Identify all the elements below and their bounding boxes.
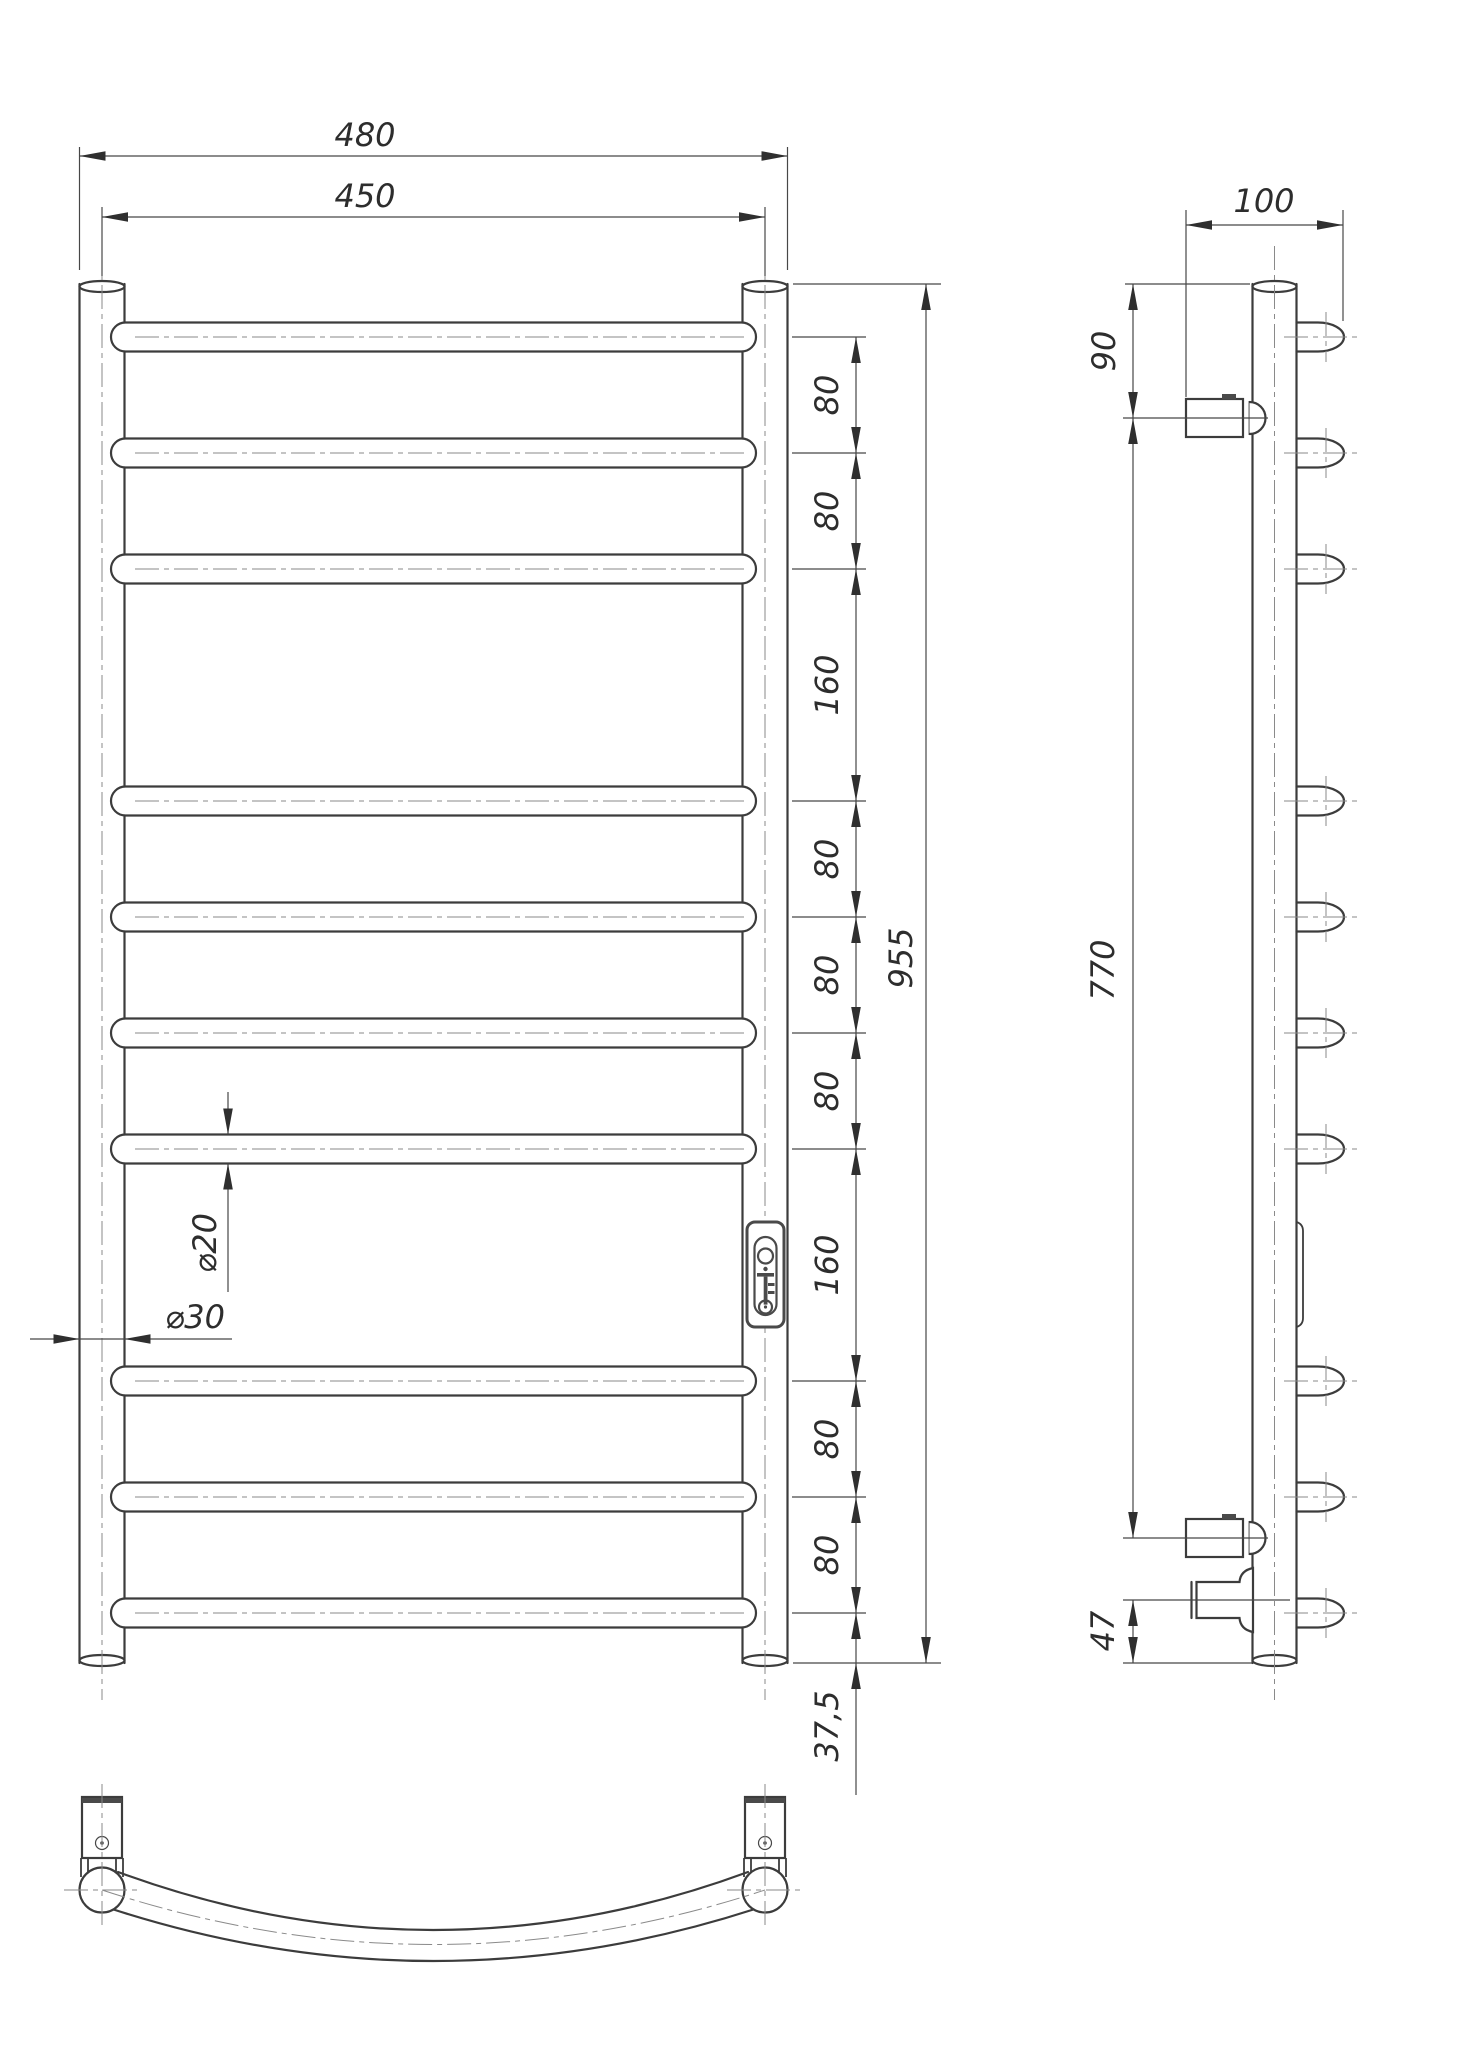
curved-rung: [112, 1872, 755, 1961]
dim-rung-diameter: ⌀20: [186, 1092, 233, 1292]
dim-label-spacing-9: 80: [808, 1535, 846, 1576]
bottom-view: [64, 1784, 803, 1961]
dim-bracket-span: 770: [1084, 418, 1268, 1538]
towel-rail-drawing: 480 450: [0, 0, 1475, 2048]
drawing-sheet: 480 450: [0, 0, 1475, 2048]
dim-label-rung-diameter: ⌀20: [186, 1213, 224, 1273]
dim-label-bracket-span: 770: [1084, 939, 1122, 1000]
dim-width-overall: 480: [80, 116, 788, 270]
dim-label-spacing-2: 80: [808, 491, 846, 532]
dim-label-spacing-4: 80: [808, 839, 846, 880]
dim-label-connector-offset: 47: [1084, 1610, 1122, 1651]
rung-stubs: [1297, 323, 1345, 1628]
dim-top-bracket-offset: 90: [1085, 284, 1268, 418]
dim-label-bottom-offset: 37,5: [808, 1690, 846, 1761]
dim-tube-diameter: ⌀30: [30, 1298, 232, 1344]
rungs: [111, 323, 756, 1628]
bottom-centerlines: [64, 1784, 803, 1945]
dim-label-spacing-1: 80: [808, 375, 846, 416]
dim-depth: 100: [1186, 182, 1343, 397]
dim-width-centers: 450: [102, 177, 765, 276]
dim-label-width-overall: 480: [334, 116, 395, 154]
dim-label-spacing-7: 160: [808, 1234, 846, 1295]
side-view: 100 90 770 47: [1084, 182, 1362, 1700]
dim-label-spacing-8: 80: [808, 1419, 846, 1460]
brand-plate: [747, 1222, 784, 1327]
dim-label-width-centers: 450: [334, 177, 395, 215]
dim-label-spacing-3: 160: [808, 654, 846, 715]
dim-label-tube-diameter: ⌀30: [165, 1298, 225, 1336]
dim-label-spacing-6: 80: [808, 1071, 846, 1112]
dim-rung-spacing-chain: 80 80 160 80 80 80 160 80 80 37,5: [792, 337, 866, 1795]
dim-label-top-bracket-offset: 90: [1085, 331, 1123, 372]
dim-label-depth: 100: [1233, 182, 1294, 220]
front-view: 480 450: [30, 116, 941, 1795]
dim-label-height-overall: 955: [882, 927, 920, 988]
dim-connector-offset: 47: [1084, 1600, 1290, 1663]
dim-label-spacing-5: 80: [808, 955, 846, 996]
